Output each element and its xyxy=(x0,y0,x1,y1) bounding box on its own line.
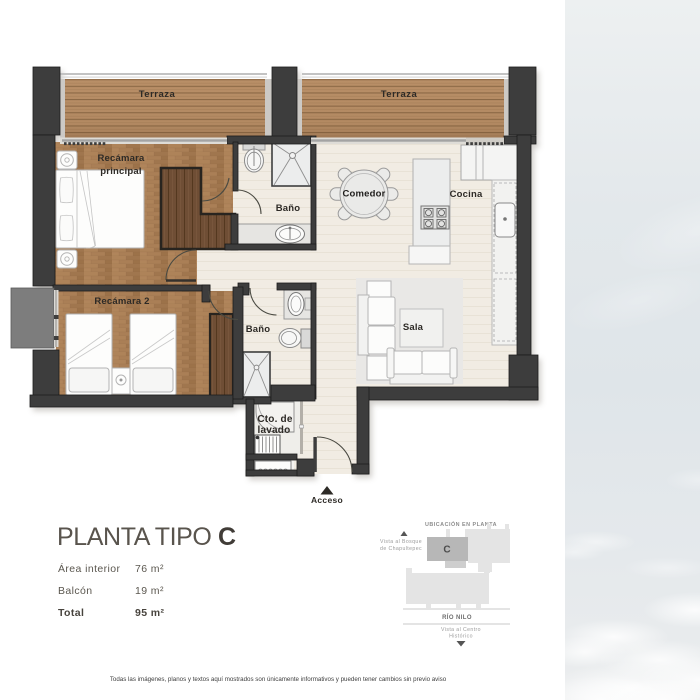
svg-text:Terraza: Terraza xyxy=(381,89,418,100)
svg-text:lavado: lavado xyxy=(258,425,291,436)
svg-text:Terraza: Terraza xyxy=(139,89,176,100)
svg-text:Acceso: Acceso xyxy=(311,495,343,505)
svg-text:Recámara: Recámara xyxy=(97,153,145,164)
svg-text:Total: Total xyxy=(58,607,84,619)
svg-text:PLANTA TIPO C: PLANTA TIPO C xyxy=(57,523,236,551)
svg-text:Todas las imágenes, planos y t: Todas las imágenes, planos y textos aquí… xyxy=(110,676,447,683)
svg-text:principal: principal xyxy=(100,166,141,177)
svg-text:19 m²: 19 m² xyxy=(135,585,164,597)
svg-text:Área interior: Área interior xyxy=(58,562,120,575)
svg-text:RÍO NILO: RÍO NILO xyxy=(442,613,472,621)
svg-text:95 m²: 95 m² xyxy=(135,607,165,619)
svg-text:UBICACIÓN EN PLANTA: UBICACIÓN EN PLANTA xyxy=(425,520,497,528)
svg-text:Vista al Bosque: Vista al Bosque xyxy=(380,539,422,545)
svg-text:C: C xyxy=(443,545,450,556)
svg-text:Sala: Sala xyxy=(403,322,424,333)
svg-text:Baño: Baño xyxy=(246,324,271,335)
svg-text:Vista al Centro: Vista al Centro xyxy=(441,627,481,633)
svg-text:Balcón: Balcón xyxy=(58,585,93,597)
svg-text:76 m²: 76 m² xyxy=(135,563,164,575)
svg-text:Histórico: Histórico xyxy=(449,634,473,640)
svg-text:Baño: Baño xyxy=(276,203,301,214)
svg-text:Cto. de: Cto. de xyxy=(257,414,293,425)
svg-text:de Chapultepec: de Chapultepec xyxy=(380,546,422,552)
svg-text:Recámara 2: Recámara 2 xyxy=(94,296,149,307)
svg-text:Comedor: Comedor xyxy=(342,189,385,200)
svg-text:Cocina: Cocina xyxy=(450,189,483,200)
